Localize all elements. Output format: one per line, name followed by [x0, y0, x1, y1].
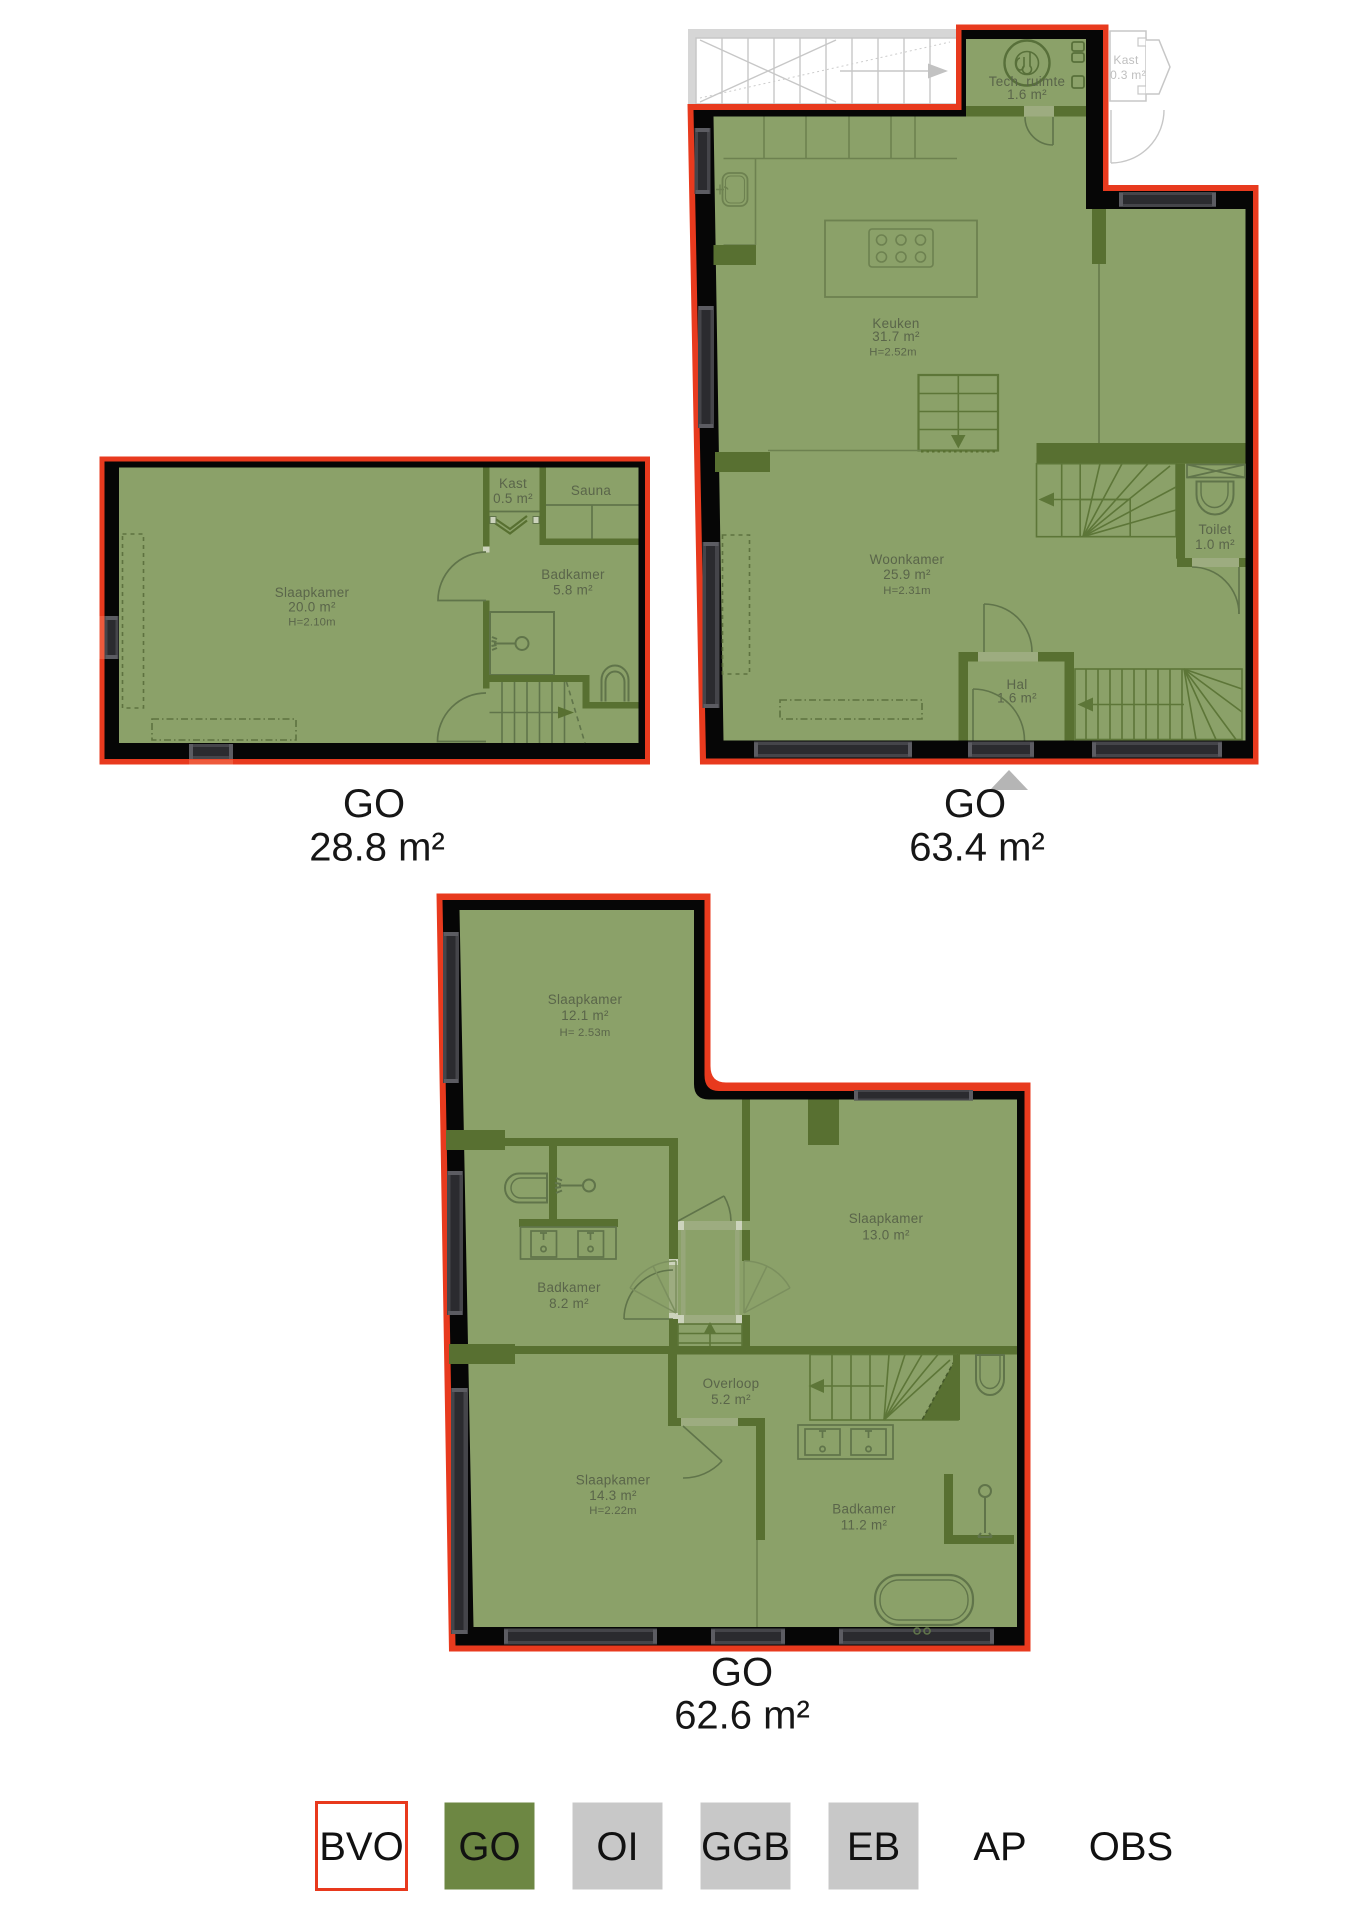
- svg-text:Toilet: Toilet: [1198, 522, 1231, 537]
- svg-text:AP: AP: [973, 1825, 1026, 1869]
- svg-text:Badkamer: Badkamer: [541, 567, 605, 582]
- svg-text:H=2.31m: H=2.31m: [883, 585, 931, 597]
- svg-text:5.8 m²: 5.8 m²: [553, 583, 593, 598]
- svg-text:5.2 m²: 5.2 m²: [711, 1392, 751, 1407]
- svg-text:Kast: Kast: [499, 476, 527, 491]
- svg-text:H=2.22m: H=2.22m: [589, 1505, 637, 1517]
- svg-text:1.0 m²: 1.0 m²: [1195, 537, 1235, 552]
- svg-text:0.5 m²: 0.5 m²: [493, 491, 533, 506]
- svg-text:12.1 m²: 12.1 m²: [561, 1008, 609, 1023]
- svg-text:20.0 m²: 20.0 m²: [288, 600, 336, 615]
- svg-text:Badkamer: Badkamer: [537, 1280, 601, 1295]
- svg-text:14.3 m²: 14.3 m²: [589, 1488, 637, 1503]
- svg-text:Sauna: Sauna: [571, 483, 611, 498]
- svg-text:Slaapkamer: Slaapkamer: [576, 1473, 651, 1488]
- svg-text:Badkamer: Badkamer: [832, 1502, 896, 1517]
- svg-text:GO: GO: [711, 1651, 773, 1695]
- svg-text:62.6 m²: 62.6 m²: [674, 1694, 810, 1738]
- svg-text:1.6 m²: 1.6 m²: [1007, 87, 1047, 102]
- svg-text:GO: GO: [343, 782, 405, 826]
- svg-text:H= 2.53m: H= 2.53m: [560, 1027, 611, 1039]
- svg-text:11.2 m²: 11.2 m²: [841, 1518, 888, 1533]
- svg-text:Kast: Kast: [1113, 53, 1139, 67]
- svg-text:OBS: OBS: [1089, 1825, 1173, 1869]
- svg-text:0.3 m²: 0.3 m²: [1110, 68, 1146, 82]
- svg-text:OI: OI: [596, 1825, 638, 1869]
- svg-text:H=2.10m: H=2.10m: [288, 617, 336, 629]
- svg-text:63.4 m²: 63.4 m²: [909, 826, 1045, 870]
- svg-text:Overloop: Overloop: [703, 1376, 760, 1391]
- svg-text:Woonkamer: Woonkamer: [870, 552, 945, 567]
- svg-text:13.0 m²: 13.0 m²: [862, 1228, 910, 1243]
- svg-text:Slaapkamer: Slaapkamer: [275, 585, 350, 600]
- svg-text:28.8 m²: 28.8 m²: [309, 826, 445, 870]
- svg-text:8.2 m²: 8.2 m²: [549, 1296, 589, 1311]
- svg-text:H=2.52m: H=2.52m: [869, 347, 917, 359]
- svg-text:25.9 m²: 25.9 m²: [883, 567, 931, 582]
- svg-text:31.7 m²: 31.7 m²: [872, 329, 920, 344]
- svg-text:EB: EB: [847, 1825, 900, 1869]
- svg-text:Slaapkamer: Slaapkamer: [548, 992, 623, 1007]
- svg-text:GO: GO: [458, 1825, 520, 1869]
- svg-text:GGB: GGB: [701, 1825, 790, 1869]
- svg-text:BVO: BVO: [319, 1825, 403, 1869]
- svg-text:Slaapkamer: Slaapkamer: [849, 1211, 924, 1226]
- svg-text:GO: GO: [944, 782, 1006, 826]
